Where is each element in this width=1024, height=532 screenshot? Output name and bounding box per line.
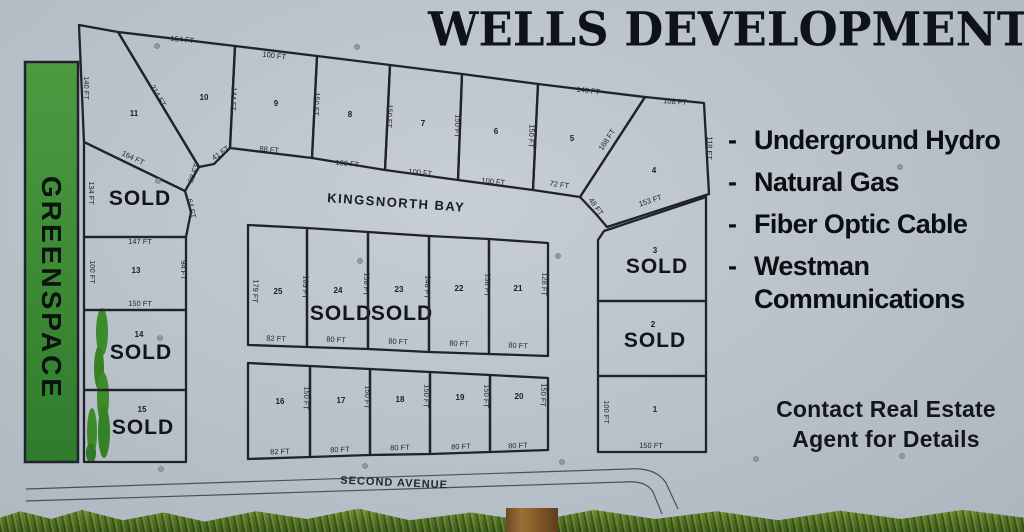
lot-17: 17150 FT80 FT xyxy=(310,366,373,457)
dimension-label: 134 FT xyxy=(87,181,96,205)
dimension-label: 179 FT xyxy=(250,279,260,304)
feature-item: - Westman Communications xyxy=(728,250,1024,316)
screw-rivet xyxy=(355,45,360,50)
dimension-label: 80 FT xyxy=(451,442,471,452)
lot-9: 9100 FT150 FT88 FT xyxy=(230,46,322,158)
dimension-label: 80 FT xyxy=(390,443,410,453)
dimension-label: 128 FT xyxy=(539,272,549,297)
lot-number: 9 xyxy=(274,99,279,108)
lot-13: 13147 FT100 FT94 FT150 FT xyxy=(84,237,188,310)
dimension-label: 80 FT xyxy=(326,334,346,344)
lot-21: 21128 FT80 FT xyxy=(489,239,550,356)
screw-rivet xyxy=(363,464,368,469)
contact-note: Contact Real Estate Agent for Details xyxy=(742,394,1024,454)
dimension-label: 140 FT xyxy=(82,76,91,100)
dimension-label: 148 FT xyxy=(422,275,432,300)
lot-16-boundary xyxy=(248,363,310,459)
dimension-label: 164 FT xyxy=(120,149,146,167)
lot-25: 25179 FT169 FT82 FT xyxy=(248,225,311,347)
street-label-kingsnorth-bay: KINGSNORTH BAY xyxy=(327,190,466,215)
lot-number: 3 xyxy=(653,246,658,255)
contact-line-2: Agent for Details xyxy=(742,424,1024,454)
dimension-label: 100 FT xyxy=(335,158,360,169)
lot-number: 22 xyxy=(455,284,464,293)
dimension-label: 158 FT xyxy=(361,272,371,297)
lot-number: 24 xyxy=(334,286,343,295)
screw-rivet xyxy=(754,457,759,462)
lot-number: 11 xyxy=(130,109,139,118)
bullet-dash: - xyxy=(728,166,754,199)
dimension-label: 150 FT xyxy=(538,383,548,408)
dimension-label: 64 FT xyxy=(185,198,198,219)
sold-label: SOLD xyxy=(310,302,372,325)
feature-label: Fiber Optic Cable xyxy=(754,208,967,241)
dimension-label: 88 FT xyxy=(259,144,280,155)
dimension-label: 94 FT xyxy=(179,260,188,280)
bullet-dash: - xyxy=(728,250,754,316)
lot-number: 7 xyxy=(421,119,426,128)
screw-rivet xyxy=(158,336,163,341)
wooden-post xyxy=(506,508,558,532)
screw-rivet xyxy=(556,254,561,259)
lot-1: 1100 FT150 FT xyxy=(598,376,706,452)
lot-number: 17 xyxy=(337,396,346,405)
lot-number: 10 xyxy=(200,93,209,102)
dimension-label: 72 FT xyxy=(549,179,570,191)
features-list: - Underground Hydro - Natural Gas - Fibe… xyxy=(728,124,1024,325)
lot-number: 16 xyxy=(276,397,285,406)
lot-number: 8 xyxy=(348,110,353,119)
lot-number: 13 xyxy=(132,266,141,275)
lot-number: 25 xyxy=(274,287,283,296)
dimension-label: 153 FT xyxy=(638,193,664,209)
dimension-label: 41 FT xyxy=(210,143,232,162)
lot-10-boundary xyxy=(118,32,235,167)
sold-label: SOLD xyxy=(109,187,171,210)
lot-11-boundary xyxy=(79,25,199,191)
lot-24: 24SOLD158 FT80 FT xyxy=(307,228,372,349)
lot-number: 4 xyxy=(652,166,657,175)
lot-number: 21 xyxy=(514,284,523,293)
lot-4: 4108 FT118 FT153 FT48 FT xyxy=(580,96,714,227)
lot-number: 15 xyxy=(138,405,147,414)
lot-number: 2 xyxy=(651,320,656,329)
sold-label: SOLD xyxy=(112,416,174,439)
feature-label: Westman Communications xyxy=(754,250,1024,316)
dimension-label: 100 FT xyxy=(262,50,287,62)
lot-5: 5146 FT168 FT72 FT xyxy=(533,84,645,197)
feature-item: - Natural Gas xyxy=(728,166,1024,199)
sold-label: SOLD xyxy=(626,255,688,278)
dimension-label: 150 FT xyxy=(128,299,152,308)
dimension-label: 80 FT xyxy=(388,336,408,346)
lot-12: SOLD164 FT64 FT134 FT xyxy=(84,142,198,237)
dimension-label: 100 FT xyxy=(481,176,506,187)
lot-20: 20150 FT80 FT xyxy=(490,375,549,452)
dimension-label: 80 FT xyxy=(449,338,469,348)
lot-7: 7150 FT100 FT xyxy=(385,65,463,180)
dimension-label: 100 FT xyxy=(408,167,433,178)
dimension-label: 80 FT xyxy=(330,445,350,455)
lot-number: 5 xyxy=(570,134,575,143)
dimension-label: 80 FT xyxy=(508,340,528,350)
lot-number: 19 xyxy=(456,393,465,402)
dimension-label: 168 FT xyxy=(597,127,618,152)
screw-rivet xyxy=(156,179,161,184)
dimension-label: 150 FT xyxy=(384,104,394,129)
lot-23: 23SOLD148 FT80 FT xyxy=(368,232,433,352)
feature-item: - Underground Hydro xyxy=(728,124,1024,157)
vegetation xyxy=(86,308,110,463)
lot-22: 22138 FT80 FT xyxy=(429,236,493,354)
dimension-label: 169 FT xyxy=(300,275,310,300)
dimension-label: 38 FT xyxy=(186,162,201,184)
feature-item: - Fiber Optic Cable xyxy=(728,208,1024,241)
dimension-label: 118 FT xyxy=(705,136,715,160)
dimension-label: 82 FT xyxy=(270,447,290,457)
lot-21-boundary xyxy=(489,239,548,356)
dimension-label: 146 FT xyxy=(576,85,601,97)
lot-number: 18 xyxy=(396,395,405,404)
dimension-label: 138 FT xyxy=(482,273,492,298)
feature-label: Natural Gas xyxy=(754,166,899,199)
sold-label: SOLD xyxy=(371,302,433,325)
feature-label: Underground Hydro xyxy=(754,124,1000,157)
lot-number: 23 xyxy=(395,285,404,294)
lot-19: 19150 FT80 FT xyxy=(430,372,492,454)
sign-title: WELLS DEVELOPMENT xyxy=(428,2,1024,57)
lot-2: 2SOLD xyxy=(598,301,706,376)
contact-line-1: Contact Real Estate xyxy=(742,394,1024,424)
screw-rivet xyxy=(155,44,160,49)
dimension-label: 82 FT xyxy=(266,333,286,343)
lot-18: 18150 FT80 FT xyxy=(370,369,432,455)
sold-label: SOLD xyxy=(110,341,172,364)
dimension-label: 214 FT xyxy=(148,83,168,108)
screw-rivet xyxy=(358,259,363,264)
lot-8: 8150 FT100 FT xyxy=(312,56,395,170)
dimension-label: 108 FT xyxy=(663,96,688,107)
sold-label: SOLD xyxy=(624,329,686,352)
street-label-second-avenue: SECOND AVENUE xyxy=(340,475,448,492)
greenspace-label: GREENSPACE xyxy=(36,176,67,400)
lot-number: 6 xyxy=(494,127,499,136)
lot-22-boundary xyxy=(429,236,489,354)
dimension-label: 80 FT xyxy=(508,441,528,451)
lot-number: 20 xyxy=(515,392,524,401)
lot-number: 1 xyxy=(653,405,658,414)
lot-6: 6150 FT100 FT xyxy=(458,74,538,190)
screw-rivet xyxy=(159,467,164,472)
dimension-label: 100 FT xyxy=(602,400,611,424)
screw-rivet xyxy=(900,454,905,459)
dimension-label: 150 FT xyxy=(639,441,663,450)
screw-rivet xyxy=(560,460,565,465)
sign-photo-background: GREENSPACE KINGSNORTH BAY SECOND AVENUE … xyxy=(0,0,1024,532)
lot-17-boundary xyxy=(310,366,370,457)
bullet-dash: - xyxy=(728,208,754,241)
dimension-label: 100 FT xyxy=(88,260,97,284)
dimension-label: 154 FT xyxy=(170,34,195,45)
lot-11: 11140 FT xyxy=(79,25,199,191)
bullet-dash: - xyxy=(728,124,754,157)
lot-number: 14 xyxy=(135,330,144,339)
dimension-label: 147 FT xyxy=(128,237,152,246)
lot-16: 16150 FT82 FT xyxy=(248,363,312,459)
dimension-label: 150 FT xyxy=(311,92,321,117)
